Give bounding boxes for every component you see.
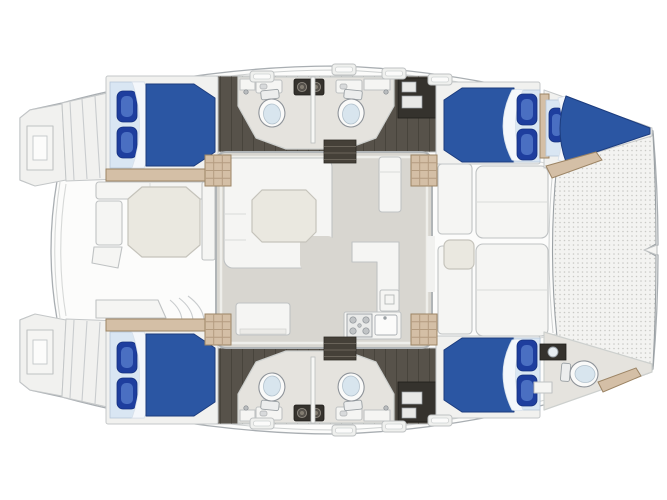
step-grid [205, 314, 231, 345]
foredeck-lounge [434, 156, 556, 345]
galley-stove-sink [344, 312, 401, 339]
catamaran-floor-plan [0, 0, 667, 500]
foredeck-table [444, 240, 474, 269]
aft-cabinet [236, 303, 290, 335]
saloon-table [252, 190, 316, 242]
cockpit-bench-fwd [96, 300, 166, 318]
foredeck-bench [438, 164, 472, 234]
cockpit-door-opening [427, 236, 435, 292]
cockpit-table [128, 187, 200, 257]
faucet [383, 316, 386, 319]
companionway-steps-top [324, 140, 356, 163]
cockpit-bench-side [96, 201, 122, 245]
floor-plan-canvas [0, 0, 667, 500]
fridge-cabinet [379, 157, 401, 212]
step-grid [205, 155, 231, 186]
step-grid [411, 314, 437, 345]
galley-appliance [380, 290, 399, 311]
saloon [216, 140, 435, 360]
companionway-steps-bottom [324, 337, 356, 360]
cockpit-seat-strip [202, 182, 215, 260]
cabinet-kick [240, 329, 286, 334]
step-grid [411, 155, 437, 186]
locker-box [534, 382, 552, 393]
hand-sink [548, 347, 558, 357]
